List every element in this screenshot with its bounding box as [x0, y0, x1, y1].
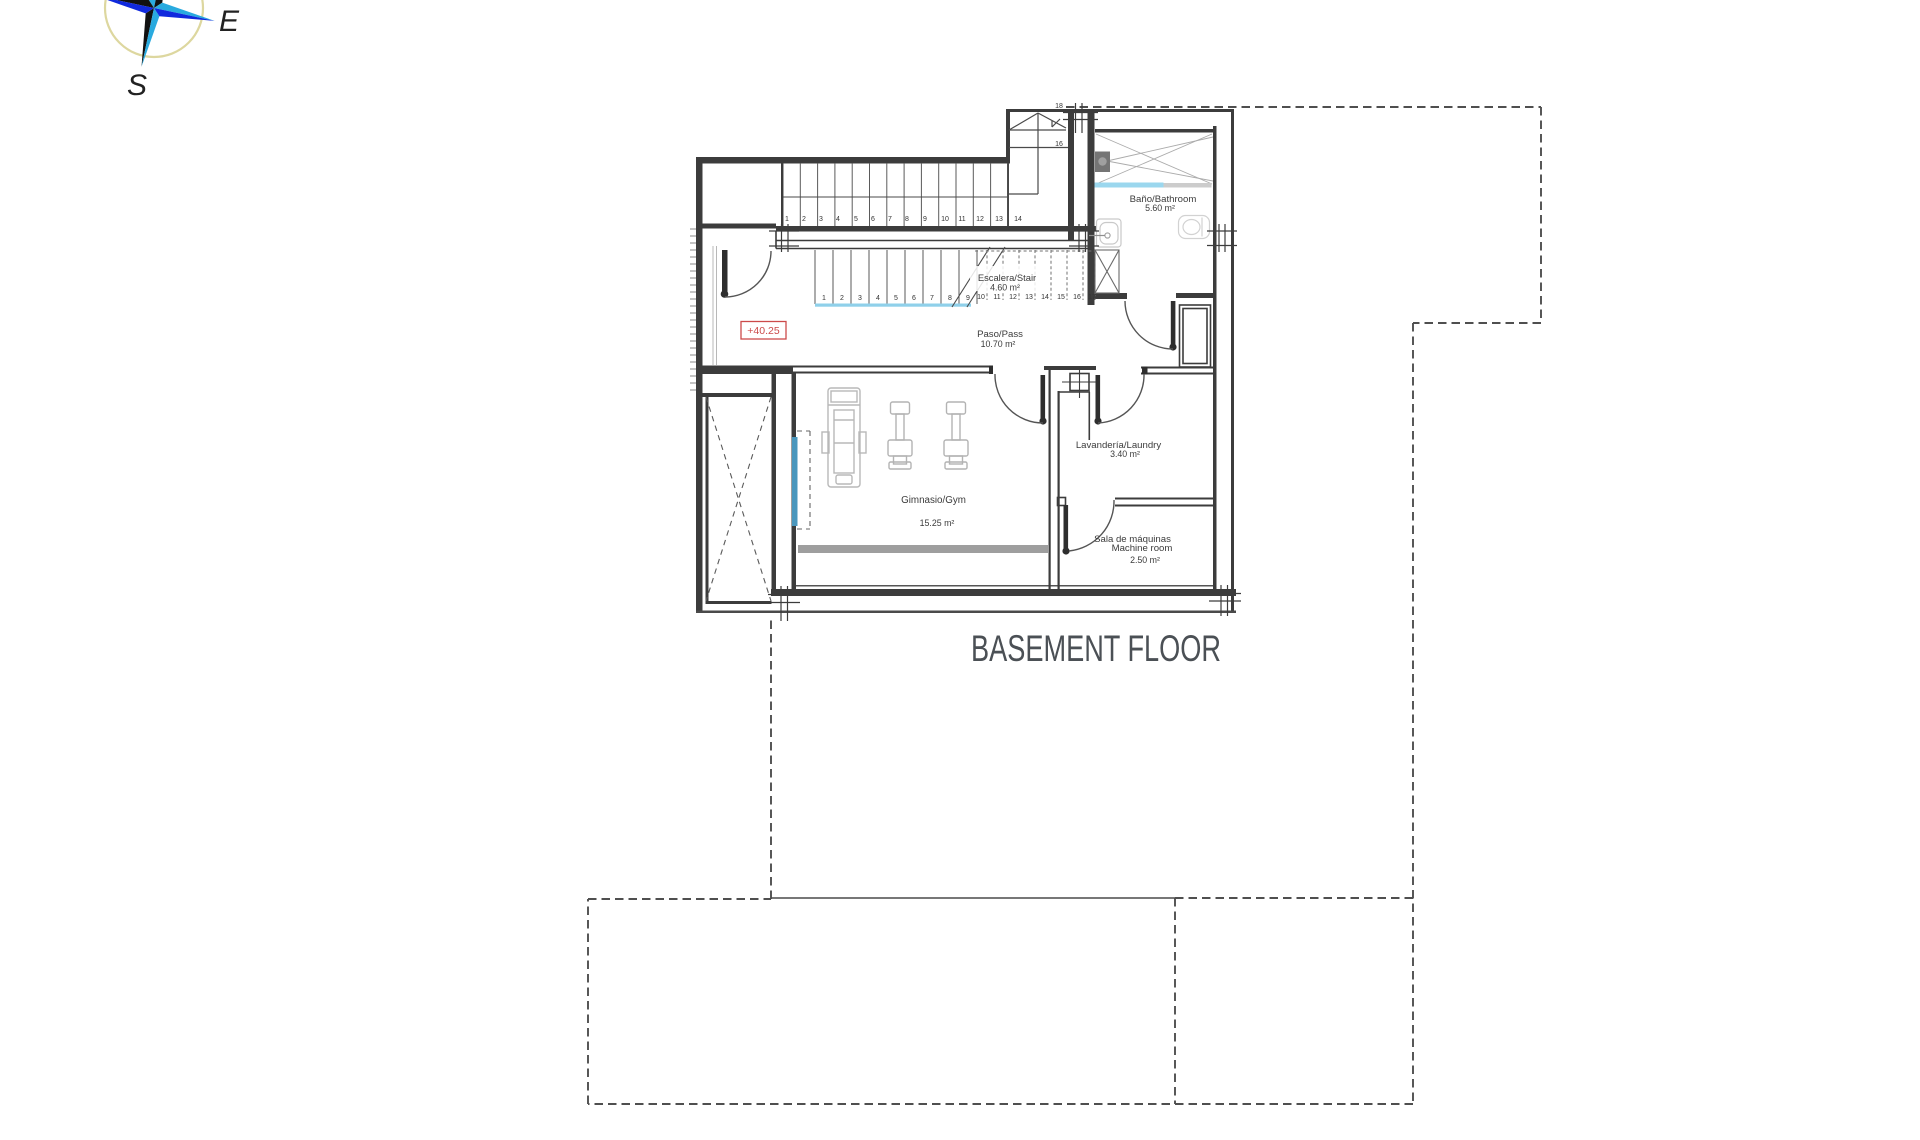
svg-text:12: 12: [976, 216, 984, 223]
svg-text:2.50 m²: 2.50 m²: [1130, 555, 1160, 565]
svg-text:15: 15: [1057, 294, 1065, 301]
svg-text:8: 8: [948, 295, 952, 302]
svg-text:7: 7: [930, 295, 934, 302]
svg-text:9: 9: [923, 216, 927, 223]
svg-text:S: S: [127, 69, 147, 102]
svg-text:18: 18: [1055, 103, 1063, 110]
svg-text:14: 14: [1014, 216, 1022, 223]
svg-text:3: 3: [858, 295, 862, 302]
svg-text:10.70 m²: 10.70 m²: [981, 339, 1016, 349]
svg-text:3: 3: [819, 216, 823, 223]
svg-text:16: 16: [1055, 141, 1063, 148]
svg-text:1: 1: [822, 295, 826, 302]
svg-text:14: 14: [1041, 294, 1049, 301]
svg-text:6: 6: [871, 216, 875, 223]
svg-text:2: 2: [840, 295, 844, 302]
svg-text:5: 5: [894, 295, 898, 302]
svg-text:11: 11: [993, 294, 1000, 301]
svg-text:9: 9: [966, 295, 970, 302]
svg-text:5: 5: [854, 216, 858, 223]
svg-text:4: 4: [876, 295, 880, 302]
svg-text:11: 11: [958, 216, 965, 223]
svg-text:15.25 m²: 15.25 m²: [920, 518, 955, 528]
svg-text:17: 17: [1088, 294, 1096, 301]
svg-text:4: 4: [836, 216, 840, 223]
svg-text:12: 12: [1009, 294, 1017, 301]
svg-text:3.40 m²: 3.40 m²: [1110, 449, 1140, 459]
svg-text:4.60 m²: 4.60 m²: [990, 283, 1020, 293]
svg-text:13: 13: [1025, 294, 1033, 301]
svg-text:Machine room: Machine room: [1112, 543, 1173, 554]
svg-text:E: E: [219, 5, 240, 38]
svg-text:Gimnasio/Gym: Gimnasio/Gym: [901, 495, 966, 506]
svg-text:13: 13: [995, 216, 1003, 223]
svg-text:7: 7: [888, 216, 892, 223]
svg-text:2: 2: [802, 216, 806, 223]
svg-text:5.60 m²: 5.60 m²: [1145, 203, 1175, 213]
svg-text:10: 10: [941, 216, 949, 223]
svg-text:16: 16: [1073, 294, 1081, 301]
svg-text:1: 1: [785, 216, 789, 223]
svg-text:10: 10: [977, 294, 985, 301]
svg-text:+40.25: +40.25: [747, 325, 780, 337]
svg-text:Escalera/Stair: Escalera/Stair: [978, 272, 1036, 283]
svg-text:BASEMENT FLOOR: BASEMENT FLOOR: [971, 628, 1221, 669]
svg-text:8: 8: [905, 216, 909, 223]
svg-text:6: 6: [912, 295, 916, 302]
